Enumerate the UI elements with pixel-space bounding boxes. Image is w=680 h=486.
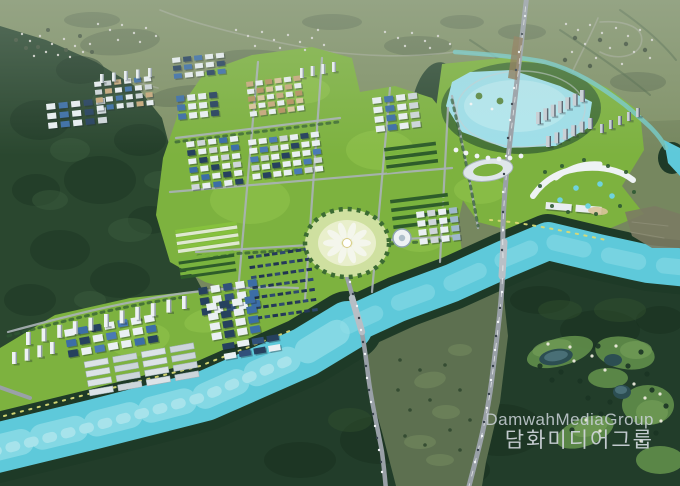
aerial-masterplan-render: DamwahMediaGroup 담화미디어그룹 xyxy=(0,0,680,486)
rendered-scene xyxy=(0,0,680,486)
atmospheric-haze xyxy=(0,0,680,486)
